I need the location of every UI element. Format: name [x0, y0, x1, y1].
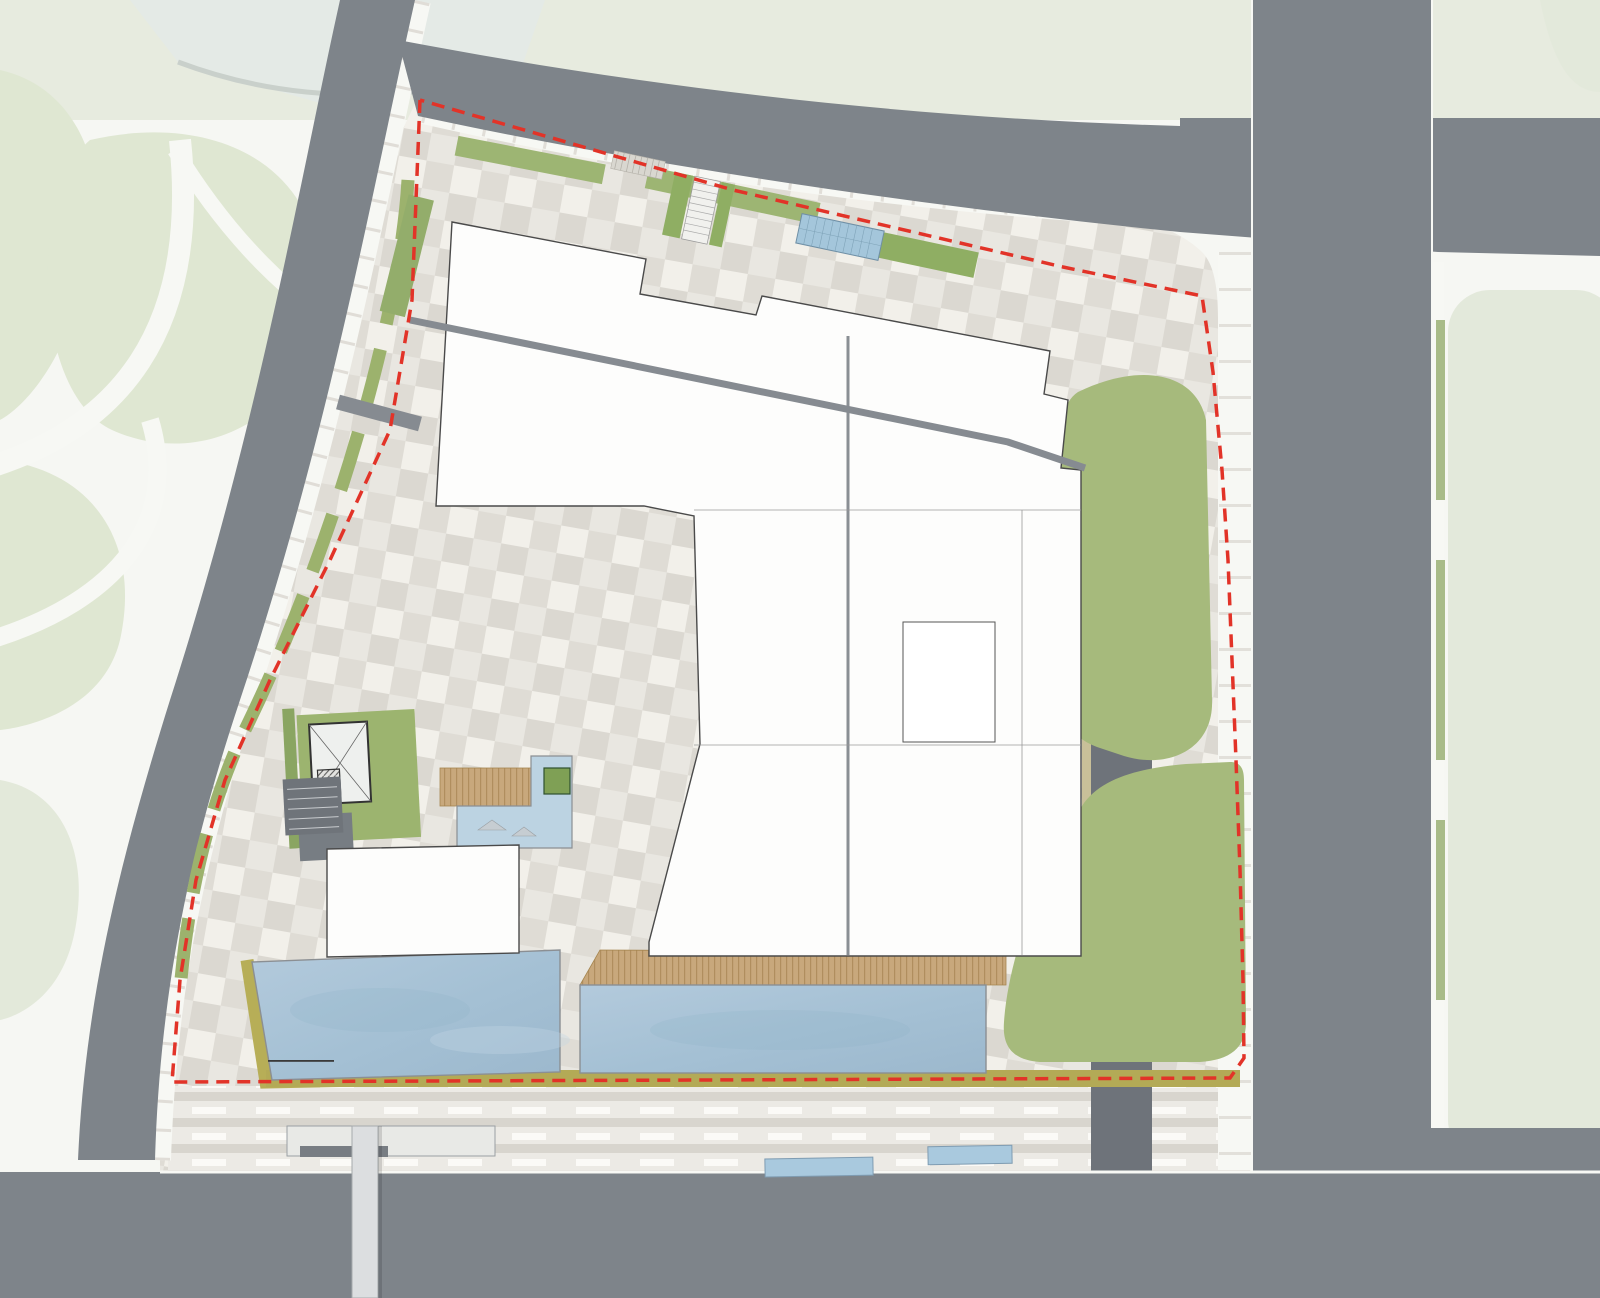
west-ramp [283, 777, 344, 836]
upper-pool [440, 756, 572, 848]
pool-annotation-line [268, 1060, 334, 1062]
bus-shelter-canopy [928, 1145, 1012, 1164]
bus-shelter-canopy [765, 1157, 873, 1177]
atrium-truss [903, 622, 995, 742]
entry-stair-feature [662, 172, 735, 247]
lobby-block [327, 845, 519, 957]
site-plan-canvas [0, 0, 1600, 1298]
site-plan-page [0, 0, 1600, 1298]
pedestrian-overpass [352, 1126, 378, 1298]
